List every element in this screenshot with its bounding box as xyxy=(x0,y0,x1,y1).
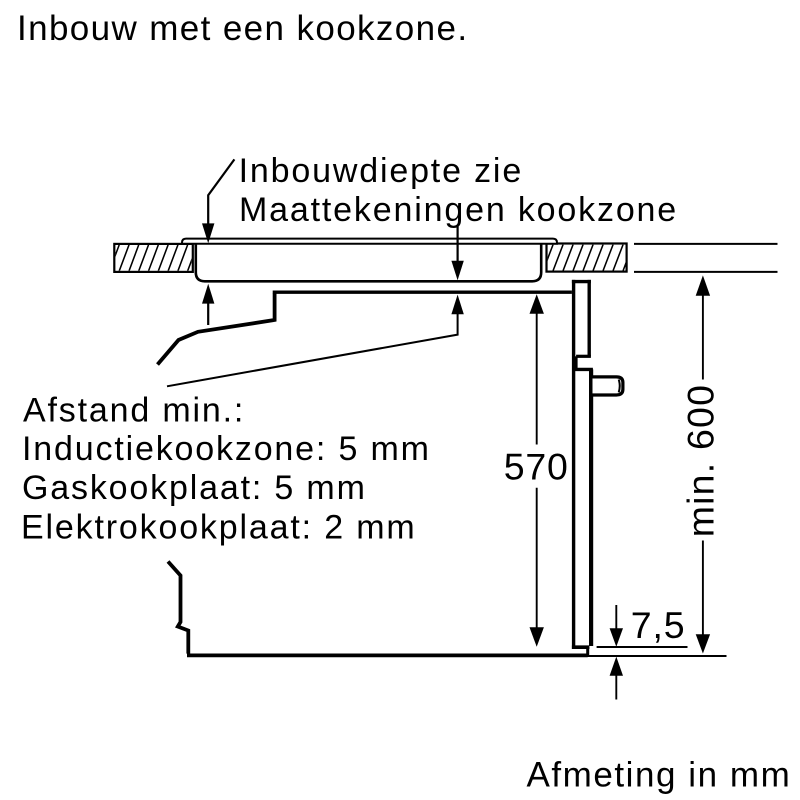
svg-text:Afstand min.:: Afstand min.: xyxy=(23,392,245,430)
svg-text:Inductiekookzone: 5 mm: Inductiekookzone: 5 mm xyxy=(22,430,431,468)
svg-text:min. 600: min. 600 xyxy=(680,384,722,537)
svg-text:Elektrokookplaat: 2 mm: Elektrokookplaat: 2 mm xyxy=(21,508,417,546)
svg-text:Inbouw met een kookzone.: Inbouw met een kookzone. xyxy=(17,9,468,48)
svg-text:Afmeting in mm: Afmeting in mm xyxy=(527,755,792,794)
svg-text:Gaskookplaat: 5 mm: Gaskookplaat: 5 mm xyxy=(22,469,367,507)
svg-text:570: 570 xyxy=(504,446,569,488)
svg-text:7,5: 7,5 xyxy=(631,604,686,646)
svg-text:Maattekeningen kookzone: Maattekeningen kookzone xyxy=(239,191,678,229)
svg-text:Inbouwdiepte zie: Inbouwdiepte zie xyxy=(239,152,523,190)
